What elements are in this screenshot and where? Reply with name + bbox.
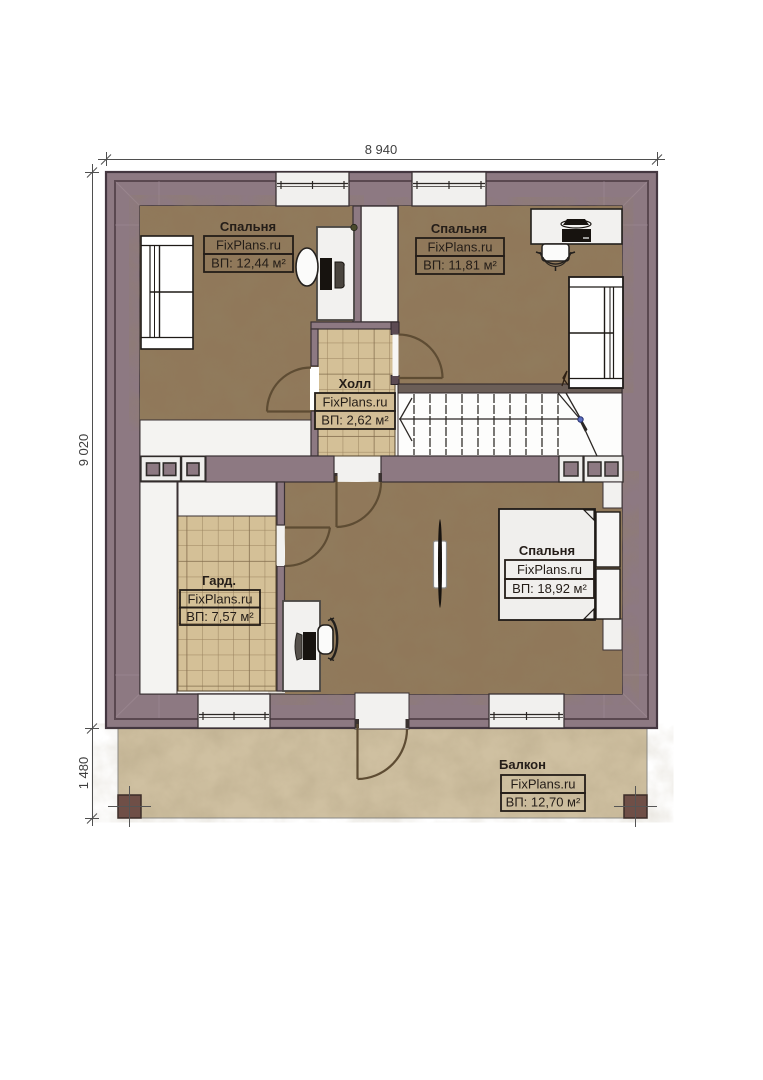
svg-text:Спальня: Спальня	[519, 543, 575, 558]
svg-text:ВП: 2,62 м²: ВП: 2,62 м²	[321, 413, 389, 428]
svg-text:Спальня: Спальня	[220, 219, 276, 234]
svg-text:FixPlans.ru: FixPlans.ru	[322, 395, 387, 410]
svg-text:ВП: 12,44 м²: ВП: 12,44 м²	[211, 256, 286, 271]
svg-text:FixPlans.ru: FixPlans.ru	[517, 562, 582, 577]
svg-text:Гард.: Гард.	[202, 573, 236, 588]
svg-text:Спальня: Спальня	[431, 221, 487, 236]
svg-text:FixPlans.ru: FixPlans.ru	[510, 777, 575, 792]
svg-text:9 020: 9 020	[76, 434, 91, 467]
svg-text:Балкон: Балкон	[499, 757, 546, 772]
svg-text:FixPlans.ru: FixPlans.ru	[187, 592, 252, 607]
svg-text:ВП: 7,57 м²: ВП: 7,57 м²	[186, 609, 254, 624]
svg-text:ВП: 11,81 м²: ВП: 11,81 м²	[423, 258, 497, 273]
svg-text:FixPlans.ru: FixPlans.ru	[216, 238, 281, 253]
svg-text:ВП: 12,70 м²: ВП: 12,70 м²	[506, 795, 581, 810]
svg-text:FixPlans.ru: FixPlans.ru	[427, 240, 492, 255]
svg-text:ВП: 18,92 м²: ВП: 18,92 м²	[512, 581, 587, 596]
svg-text:1 480: 1 480	[76, 757, 91, 790]
svg-text:8 940: 8 940	[365, 142, 398, 157]
svg-text:Холл: Холл	[339, 376, 372, 391]
